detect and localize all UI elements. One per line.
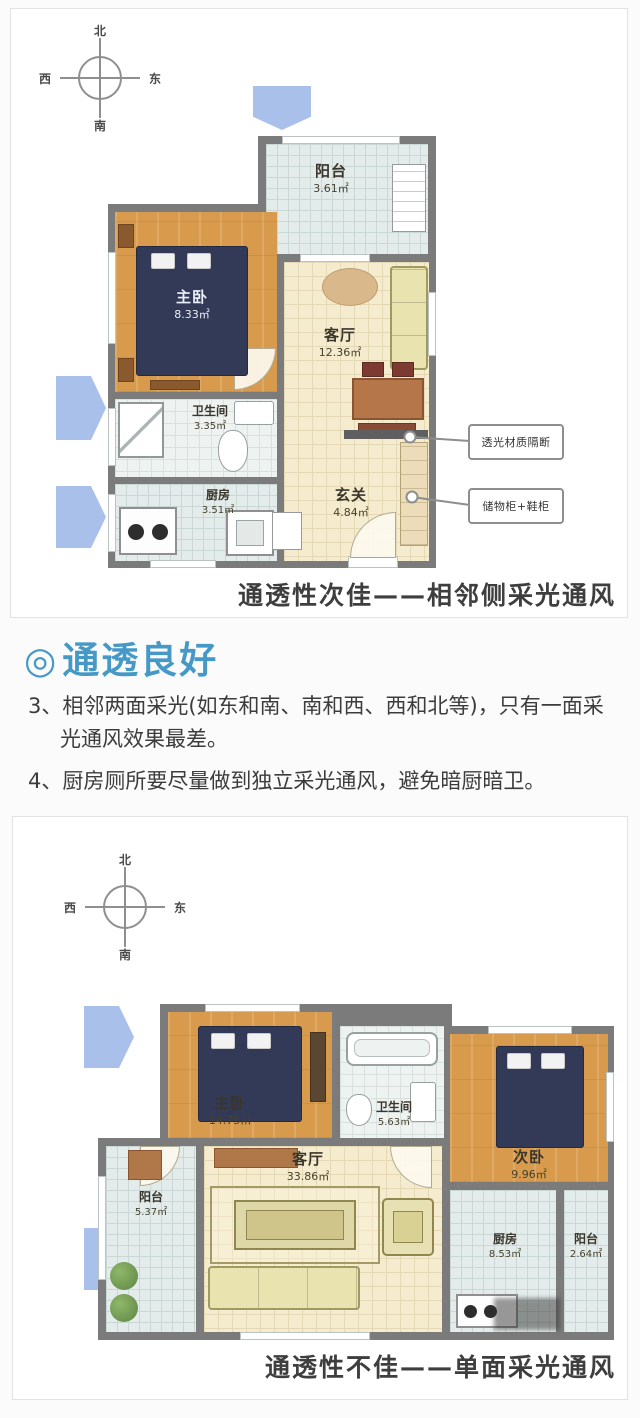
plan1-caption: 通透性次佳——相邻侧采光通风 xyxy=(238,576,616,612)
room-name: 玄关 xyxy=(316,486,386,506)
bathtub-basin-2 xyxy=(354,1039,430,1057)
room-area: 33.86㎡ xyxy=(262,1170,354,1184)
sofa-2 xyxy=(208,1266,360,1310)
window-master-top-2 xyxy=(205,1004,300,1012)
room-balcony-right-2 xyxy=(564,1190,608,1332)
room-area: 5.37㎡ xyxy=(110,1206,192,1219)
room-name: 主卧 xyxy=(146,288,238,308)
window-balcony-living-1 xyxy=(300,254,370,262)
room-area: 4.84㎡ xyxy=(316,506,386,520)
room-area: 8.33㎡ xyxy=(146,308,238,322)
shower-1 xyxy=(118,402,164,458)
plant-2a xyxy=(110,1262,138,1290)
room-label-master-1: 主卧 8.33㎡ xyxy=(146,288,238,322)
room-label-balcony-1: 阳台 3.61㎡ xyxy=(286,162,376,196)
room-label-master-2: 主卧 14.75㎡ xyxy=(182,1094,278,1128)
callout-line-cabinet xyxy=(412,497,470,505)
sink-kitchen-1 xyxy=(226,510,274,556)
section-title: ◎通透良好 xyxy=(24,630,218,684)
dining-table-1 xyxy=(352,378,424,420)
toilet-1 xyxy=(218,430,248,472)
room-area: 5.63㎡ xyxy=(348,1116,440,1129)
room-area: 3.35㎡ xyxy=(168,420,252,433)
room-label-kitchen-1: 厨房 3.51㎡ xyxy=(178,488,258,517)
bed-second-2 xyxy=(496,1046,584,1148)
room-area: 2.64㎡ xyxy=(562,1248,610,1261)
compass-1: 北 南 西 东 xyxy=(55,33,145,123)
window-second-right-2 xyxy=(606,1072,614,1142)
room-area: 8.53㎡ xyxy=(462,1248,548,1261)
room-label-balcony-right-2: 阳台 2.64㎡ xyxy=(562,1232,610,1261)
wardrobe-2 xyxy=(310,1032,326,1102)
burner-1a xyxy=(128,524,144,540)
window-balcony-top-1 xyxy=(282,136,400,144)
callout-dot-partition xyxy=(405,432,416,443)
rug-oval-1 xyxy=(322,268,378,306)
coffee-table-top-2 xyxy=(246,1210,344,1240)
section-title-marker: ◎ xyxy=(24,639,58,682)
nightstand-1a xyxy=(118,224,134,248)
plant-2b xyxy=(110,1294,138,1322)
window-balcony-left-2 xyxy=(98,1176,106,1280)
callout-lines xyxy=(386,420,476,512)
room-area: 14.75㎡ xyxy=(182,1114,278,1128)
room-area: 9.96㎡ xyxy=(470,1168,588,1182)
compass-label-south: 南 xyxy=(80,946,170,963)
nightstand-1b xyxy=(118,358,134,382)
room-label-living-2: 客厅 33.86㎡ xyxy=(262,1150,354,1184)
compass-label-north: 北 xyxy=(80,851,170,868)
window-kitchen-left-1 xyxy=(108,494,116,552)
compass-label-east: 东 xyxy=(149,70,161,87)
window-living-right-1 xyxy=(428,292,436,356)
room-name: 阳台 xyxy=(286,162,376,182)
pillow-2b xyxy=(247,1033,271,1049)
pillow-1a xyxy=(151,253,175,269)
room-label-bath-2: 卫生间 5.63㎡ xyxy=(348,1100,440,1129)
room-name: 阳台 xyxy=(110,1190,192,1206)
shoe-cabinet-1 xyxy=(272,512,302,550)
washing-machine-1 xyxy=(392,164,426,232)
room-label-bath-1: 卫生间 3.35㎡ xyxy=(168,404,252,433)
coffee-table-2 xyxy=(234,1200,356,1250)
note-point-4: 4、厨房厕所要尽量做到独立采光通风，避免暗厨暗卫。 xyxy=(28,765,620,798)
callout-line-partition xyxy=(410,437,470,441)
compass-label-west: 西 xyxy=(64,899,76,916)
balcony-table-2 xyxy=(128,1150,162,1180)
room-name: 厨房 xyxy=(178,488,258,504)
callout-dot-cabinet xyxy=(407,492,418,503)
window-second-top-2 xyxy=(488,1026,572,1034)
dining-chair-1a xyxy=(362,362,384,377)
pillow-2a xyxy=(211,1033,235,1049)
room-label-living-1: 客厅 12.36㎡ xyxy=(300,326,380,360)
pillow-1b xyxy=(187,253,211,269)
room-name: 卫生间 xyxy=(168,404,252,420)
armchair-seat-2 xyxy=(393,1211,423,1243)
window-master-left-1 xyxy=(108,252,116,344)
window-bath-left-1 xyxy=(108,408,116,466)
burner-2a xyxy=(464,1305,477,1318)
sink-basin-1 xyxy=(236,520,264,546)
room-name: 卫生间 xyxy=(348,1100,440,1116)
compass-2: 北 南 西 东 xyxy=(80,862,170,952)
room-name: 主卧 xyxy=(182,1094,278,1114)
room-label-kitchen-2: 厨房 8.53㎡ xyxy=(462,1232,548,1261)
room-name: 阳台 xyxy=(562,1232,610,1248)
pillow-2c xyxy=(507,1053,531,1069)
bench-master-1 xyxy=(150,380,200,390)
pillow-2d xyxy=(541,1053,565,1069)
bathtub-2 xyxy=(346,1032,438,1066)
compass-label-east: 东 xyxy=(174,899,186,916)
burner-1b xyxy=(152,524,168,540)
room-area: 3.51㎡ xyxy=(178,504,258,517)
page: 北 南 西 东 xyxy=(0,0,640,1418)
armchair-2 xyxy=(382,1198,434,1256)
compass-label-north: 北 xyxy=(55,22,145,39)
compass-label-south: 南 xyxy=(55,117,145,134)
plan2-caption: 通透性不佳——单面采光通风 xyxy=(265,1348,616,1384)
room-label-second-2: 次卧 9.96㎡ xyxy=(470,1148,588,1182)
section-body: 3、相邻两面采光(如东和南、南和西、西和北等)，只有一面采光通风效果最差。 4、… xyxy=(28,690,620,808)
room-name: 厨房 xyxy=(462,1232,548,1248)
compass-ring xyxy=(103,885,147,929)
callout-cabinet: 储物柜+鞋柜 xyxy=(468,488,564,524)
stove-1 xyxy=(119,507,177,555)
callout-partition: 透光材质隔断 xyxy=(468,424,564,460)
dining-chair-1b xyxy=(392,362,414,377)
window-kitchen-bottom-1 xyxy=(150,560,216,568)
compass-ring xyxy=(78,56,122,100)
compass-label-west: 西 xyxy=(39,70,51,87)
section-title-text: 通透良好 xyxy=(62,639,218,682)
room-name: 客厅 xyxy=(300,326,380,346)
room-name: 次卧 xyxy=(470,1148,588,1168)
sofa-1 xyxy=(390,266,428,370)
room-area: 3.61㎡ xyxy=(286,182,376,196)
room-name: 客厅 xyxy=(262,1150,354,1170)
room-area: 12.36㎡ xyxy=(300,346,380,360)
note-point-3: 3、相邻两面采光(如东和南、南和西、西和北等)，只有一面采光通风效果最差。 xyxy=(28,690,620,756)
window-living-bottom-2 xyxy=(240,1332,370,1340)
room-label-foyer-1: 玄关 4.84㎡ xyxy=(316,486,386,520)
room-label-balcony-left-2: 阳台 5.37㎡ xyxy=(110,1190,192,1219)
watermark xyxy=(494,1298,560,1330)
